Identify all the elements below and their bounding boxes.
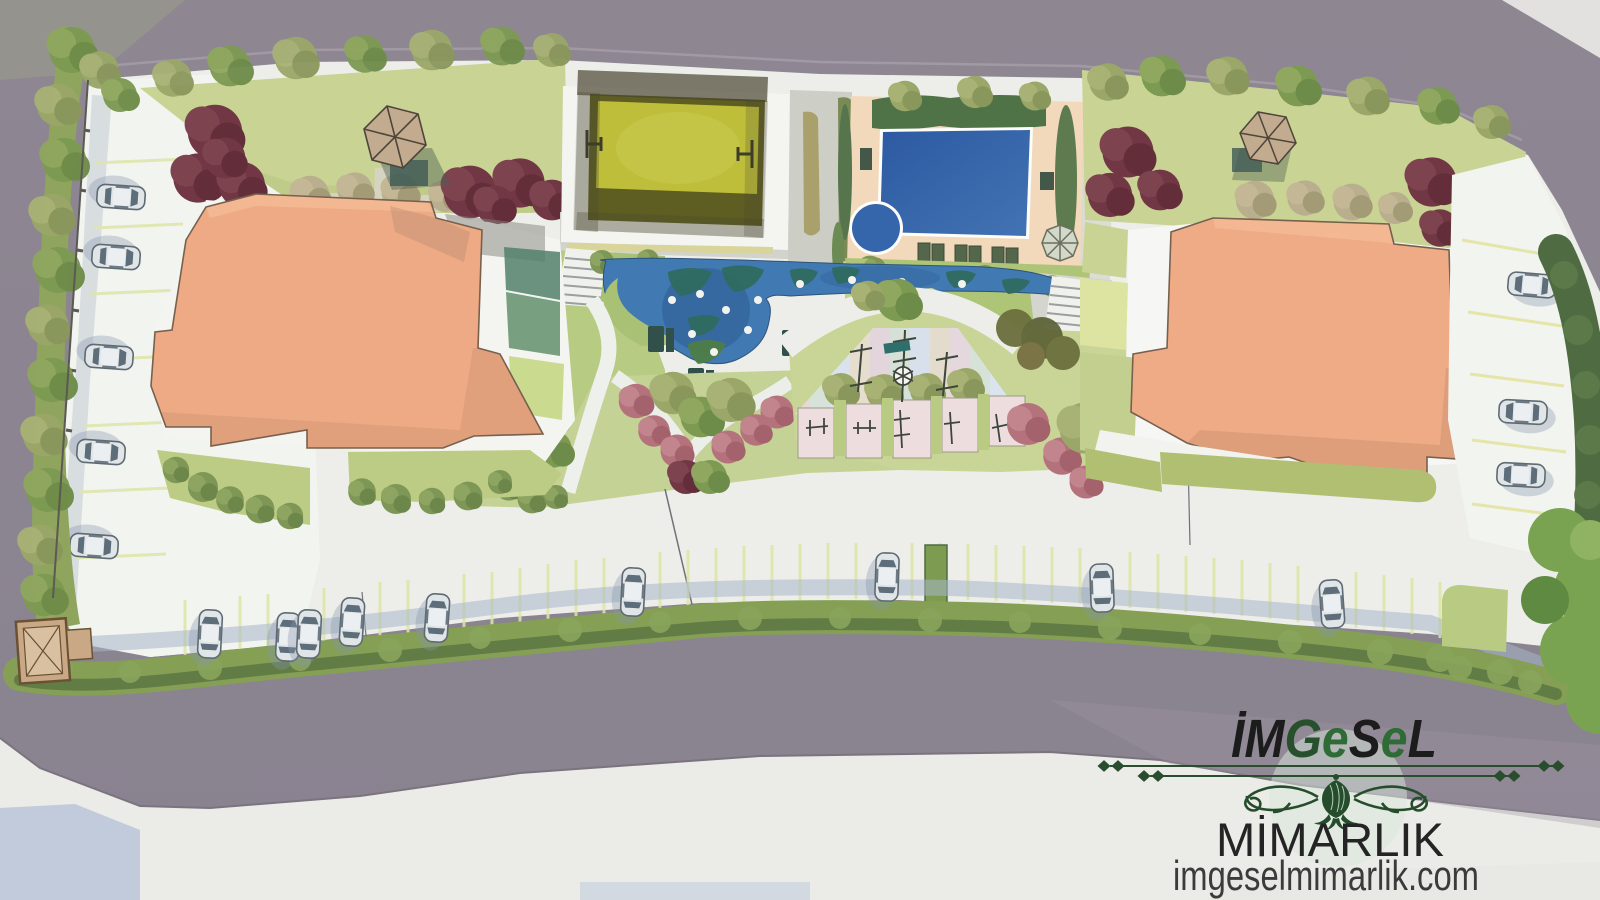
svg-text:İMGeSeL: İMGeSeL — [1231, 709, 1437, 769]
svg-text:imgeselmimarlik.com: imgeselmimarlik.com — [1173, 852, 1479, 899]
